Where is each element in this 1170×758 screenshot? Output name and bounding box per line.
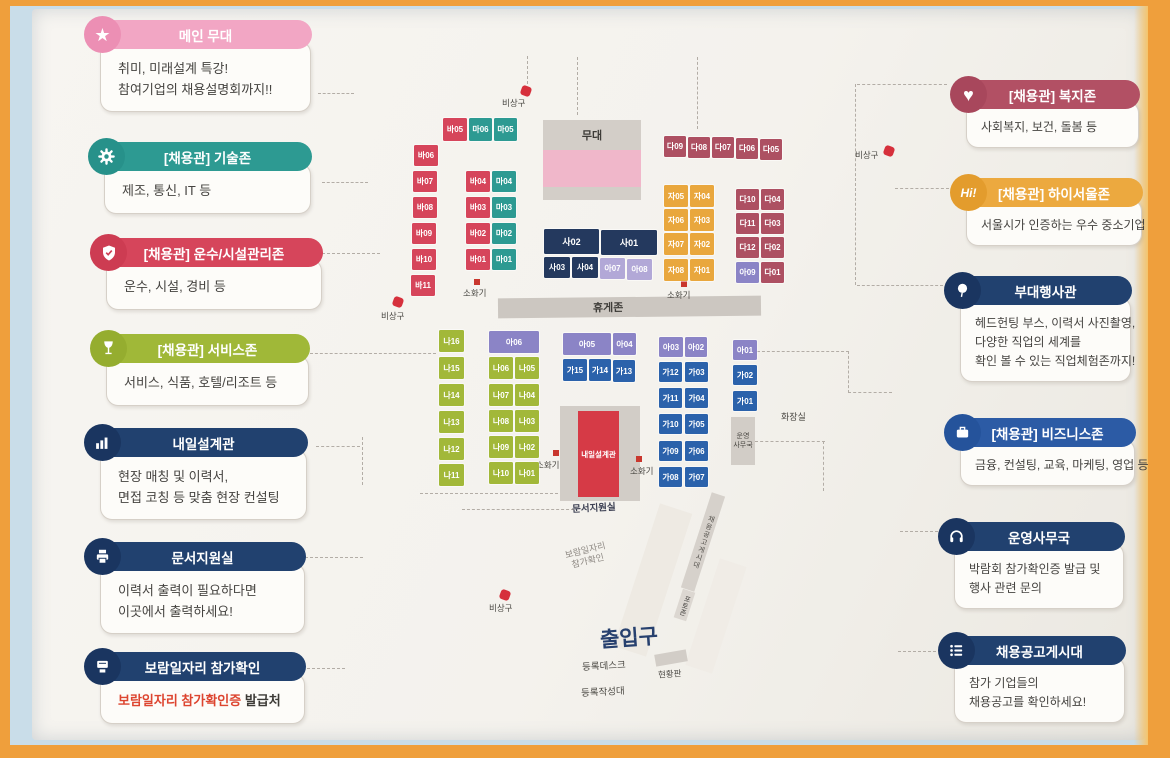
booth: 나04 — [515, 384, 539, 406]
photo-zone-label: 포토존 — [677, 593, 693, 616]
booth: 가09 — [659, 441, 682, 461]
legend-line: 운수, 시설, 경비 등 — [124, 277, 311, 298]
legend-line: 서비스, 식품, 호텔/리조트 등 — [124, 373, 298, 394]
balloon-icon — [944, 272, 981, 309]
legend-title: 채용공고게시대 — [953, 636, 1126, 665]
dashed-connector — [307, 668, 345, 669]
booth: 사03 — [544, 257, 570, 278]
booth: 바07 — [413, 171, 437, 192]
booth: 마03 — [492, 197, 516, 218]
booth: 아01 — [733, 340, 757, 360]
booth: 아09 — [736, 262, 759, 283]
bar-chart-icon — [84, 424, 121, 461]
booth: 가01 — [733, 391, 757, 411]
dashed-connector — [577, 57, 578, 115]
certificate-icon — [84, 648, 121, 685]
booth: 자02 — [690, 233, 714, 255]
booth: 바01 — [466, 249, 490, 270]
booth: 나07 — [489, 384, 513, 406]
booth: 아07 — [600, 258, 625, 279]
dashed-connector — [322, 253, 380, 254]
registration-write-label: 등록작성대 — [581, 683, 625, 699]
legend-line: 보람일자리 참가확인증 발급처 — [118, 691, 294, 712]
dashed-connector — [697, 57, 698, 129]
booth: 자05 — [664, 185, 688, 207]
booth: 다11 — [736, 213, 759, 234]
dashed-connector — [757, 351, 849, 352]
booth: 아02 — [685, 337, 707, 357]
booth: 다01 — [761, 262, 784, 283]
legend-title: [채용관] 서비스존 — [105, 334, 310, 363]
booth: 마01 — [492, 249, 516, 270]
booth: 다09 — [664, 136, 686, 157]
boram-check-map-label: 보람일자리참가확인 — [564, 540, 610, 572]
booth: 바02 — [466, 223, 490, 244]
legend-line: 이력서 출력이 필요하다면 — [118, 581, 294, 602]
legend-line: 참여기업의 채용설명회까지!! — [118, 80, 300, 101]
restroom-label: 화장실 — [781, 410, 806, 423]
legend-line: 제조, 통신, IT 등 — [122, 181, 300, 202]
booth: 자01 — [690, 259, 714, 281]
booth: 아04 — [613, 333, 636, 355]
photo-zone-tag: 포토존 — [674, 589, 696, 622]
booth: 마02 — [492, 223, 516, 244]
dashed-connector — [322, 182, 368, 183]
emergency-exit-marker — [883, 145, 896, 158]
booth: 다07 — [712, 137, 734, 158]
fire-extinguisher-marker — [681, 281, 687, 287]
registration-desk-label: 등록데스크 — [582, 657, 626, 673]
legend-title: [채용관] 기술존 — [103, 142, 312, 171]
booth: 나10 — [489, 462, 513, 484]
booth: 바05 — [443, 118, 467, 141]
booth: 나14 — [439, 384, 464, 406]
booth: 다08 — [688, 137, 710, 158]
dashed-connector — [900, 531, 938, 532]
posting-board-label: 채용공고게시대 — [690, 514, 717, 570]
booth: 자06 — [664, 209, 688, 231]
dashed-connector — [316, 446, 360, 447]
legend-line: 면접 코칭 등 맞춤 현장 컨설팅 — [118, 488, 296, 509]
booth: 나05 — [515, 357, 539, 379]
booth: 가03 — [685, 362, 708, 382]
stage-step — [543, 187, 641, 200]
booth: 아03 — [659, 337, 683, 357]
printer-icon — [84, 538, 121, 575]
star-icon: ★ — [84, 16, 121, 53]
fire-extinguisher-label: 소화기 — [536, 459, 559, 471]
dashed-connector — [362, 437, 363, 485]
booth: 다03 — [761, 213, 784, 234]
booth: 바08 — [413, 197, 437, 218]
booth: 바04 — [466, 171, 490, 192]
booth: 아08 — [627, 259, 652, 280]
briefcase-icon — [944, 414, 981, 451]
fire-extinguisher-label: 소화기 — [463, 287, 486, 299]
legend-title: 메인 무대 — [99, 20, 312, 49]
booth: 바09 — [412, 223, 436, 244]
shield-check-icon — [90, 234, 127, 271]
emergency-exit-label: 비상구 — [489, 602, 512, 614]
booth: 나08 — [489, 410, 513, 432]
ops-office-block: 운영 사무국 — [731, 417, 755, 465]
fire-extinguisher-label: 소화기 — [667, 289, 690, 301]
booth: 바11 — [411, 275, 435, 296]
booth: 나09 — [489, 436, 513, 458]
dashed-connector — [898, 651, 936, 652]
booth: 마05 — [494, 118, 517, 141]
booth: 사04 — [572, 257, 598, 278]
booth: 가07 — [685, 467, 708, 487]
heart-icon: ♥ — [950, 76, 987, 113]
booth: 나11 — [439, 464, 464, 486]
dashed-connector — [848, 351, 849, 393]
booth: 나01 — [515, 462, 539, 484]
booth: 자07 — [664, 233, 688, 255]
legend-line: 행사 관련 문의 — [969, 579, 1115, 598]
legend-line: 헤드헌팅 부스, 이력서 사진촬영, — [975, 314, 1122, 333]
booth: 자04 — [690, 185, 714, 207]
booth: 가05 — [685, 414, 708, 434]
emergency-exit-marker — [499, 589, 512, 602]
emergency-exit-marker — [520, 85, 533, 98]
legend-line: 박람회 참가확인증 발급 및 — [969, 560, 1115, 579]
legend-line: 사회복지, 보건, 돌봄 등 — [981, 118, 1130, 137]
legend-line: 이곳에서 출력하세요! — [118, 602, 294, 623]
booth: 가15 — [563, 359, 587, 381]
legend-line: 서울시가 인증하는 우수 중소기업 — [981, 216, 1133, 235]
legend-title: 보람일자리 참가확인 — [99, 652, 306, 681]
dashed-connector — [857, 84, 947, 85]
stage-label: 무대 — [543, 120, 641, 150]
booth: 다06 — [736, 138, 758, 159]
dashed-connector — [895, 188, 949, 189]
booth: 아05 — [563, 333, 611, 355]
legend-line: 확인 볼 수 있는 직업체험존까지! — [975, 352, 1122, 371]
fire-extinguisher-marker — [474, 279, 480, 285]
booth: 나15 — [439, 357, 464, 379]
booth: 바06 — [414, 145, 438, 166]
booth: 사01 — [601, 230, 657, 255]
booth: 자08 — [664, 259, 688, 281]
booth: 가06 — [685, 441, 708, 461]
legend-title: 문서지원실 — [99, 542, 306, 571]
dashed-connector — [848, 392, 892, 393]
booth: 나13 — [439, 411, 464, 433]
fire-extinguisher-marker — [636, 456, 642, 462]
booth: 자03 — [690, 209, 714, 231]
booth: 마04 — [492, 171, 516, 192]
legend-title: [채용관] 하이서울존 — [965, 178, 1143, 207]
booth: 가11 — [659, 388, 682, 408]
dashed-connector — [855, 84, 856, 285]
legend-title: [채용관] 비즈니스존 — [959, 418, 1136, 447]
booth: 다04 — [761, 189, 784, 210]
entrance-label: 출입구 — [599, 620, 659, 654]
legend-title: [채용관] 복지존 — [965, 80, 1140, 109]
booth: 가14 — [589, 359, 611, 381]
document-room-label: 문서지원실 — [572, 499, 616, 515]
legend-title: [채용관] 운수/시설관리존 — [105, 238, 323, 267]
booth: 나03 — [515, 410, 539, 432]
booth: 다10 — [736, 189, 759, 210]
stage-floor — [543, 150, 641, 187]
booth: 바03 — [466, 197, 490, 218]
emergency-exit-marker — [392, 296, 405, 309]
fire-extinguisher-marker — [553, 450, 559, 456]
booth: 바10 — [412, 249, 436, 270]
status-board-label: 현황판 — [658, 667, 682, 681]
booth: 가13 — [613, 360, 635, 382]
legend-line: 현장 매칭 및 이력서, — [118, 467, 296, 488]
emergency-exit-label: 비상구 — [381, 310, 404, 322]
ops-office-label: 운영 — [737, 432, 750, 441]
legend-line: 참가 기업들의 — [969, 674, 1116, 693]
legend-line: 금융, 컨설팅, 교육, 마케팅, 영업 등 — [975, 456, 1126, 475]
booth: 나06 — [489, 357, 513, 379]
dashed-connector — [823, 441, 824, 491]
legend-line: 채용공고를 확인하세요! — [969, 693, 1116, 712]
wine-glass-icon — [90, 330, 127, 367]
job-fair-floor-map-photo: 취미, 미래설계 특강!참여기업의 채용설명회까지!! 메인 무대 ★ 제조, … — [0, 0, 1170, 758]
dashed-connector — [305, 557, 363, 558]
tomorrow-hall-label: 내일설계관 — [581, 449, 616, 460]
legend-line: 취미, 미래설계 특강! — [118, 59, 300, 80]
booth: 가02 — [733, 365, 757, 385]
legend-title: 내일설계관 — [99, 428, 308, 457]
booth: 가04 — [685, 388, 708, 408]
booth: 가10 — [659, 414, 682, 434]
list-icon — [938, 632, 975, 669]
ops-office-label: 사무국 — [733, 441, 752, 450]
rest-zone-label: 휴게존 — [593, 299, 624, 315]
booth: 다02 — [761, 237, 784, 258]
fire-extinguisher-label: 소화기 — [630, 465, 653, 477]
emergency-exit-label: 비상구 — [855, 149, 878, 161]
booth: 나16 — [439, 330, 464, 352]
booth: 다05 — [760, 139, 782, 160]
booth: 마06 — [469, 118, 492, 141]
stage-area: 무대 — [543, 120, 641, 200]
rest-zone: 휴게존 — [498, 296, 761, 319]
dashed-connector — [318, 93, 354, 94]
legend-line: 다양한 직업의 세계를 — [975, 333, 1122, 352]
dashed-connector — [857, 285, 943, 286]
tomorrow-hall-red: 내일설계관 — [578, 411, 619, 497]
dashed-connector — [310, 353, 436, 354]
booth: 나02 — [515, 436, 539, 458]
emergency-exit-label: 비상구 — [502, 97, 525, 109]
legend-title: 운영사무국 — [953, 522, 1125, 551]
booth: 가12 — [659, 362, 682, 382]
hi-icon: Hi! — [950, 174, 987, 211]
gear-icon — [88, 138, 125, 175]
booth: 가08 — [659, 467, 682, 487]
booth: 사02 — [544, 229, 599, 254]
legend-title: 부대행사관 — [959, 276, 1132, 305]
booth: 아06 — [489, 331, 539, 353]
booth: 나12 — [439, 438, 464, 460]
headset-icon — [938, 518, 975, 555]
booth: 다12 — [736, 237, 759, 258]
dashed-connector — [462, 509, 574, 510]
status-board-block — [654, 649, 688, 666]
dashed-connector — [755, 441, 825, 442]
dashed-connector — [527, 56, 528, 84]
